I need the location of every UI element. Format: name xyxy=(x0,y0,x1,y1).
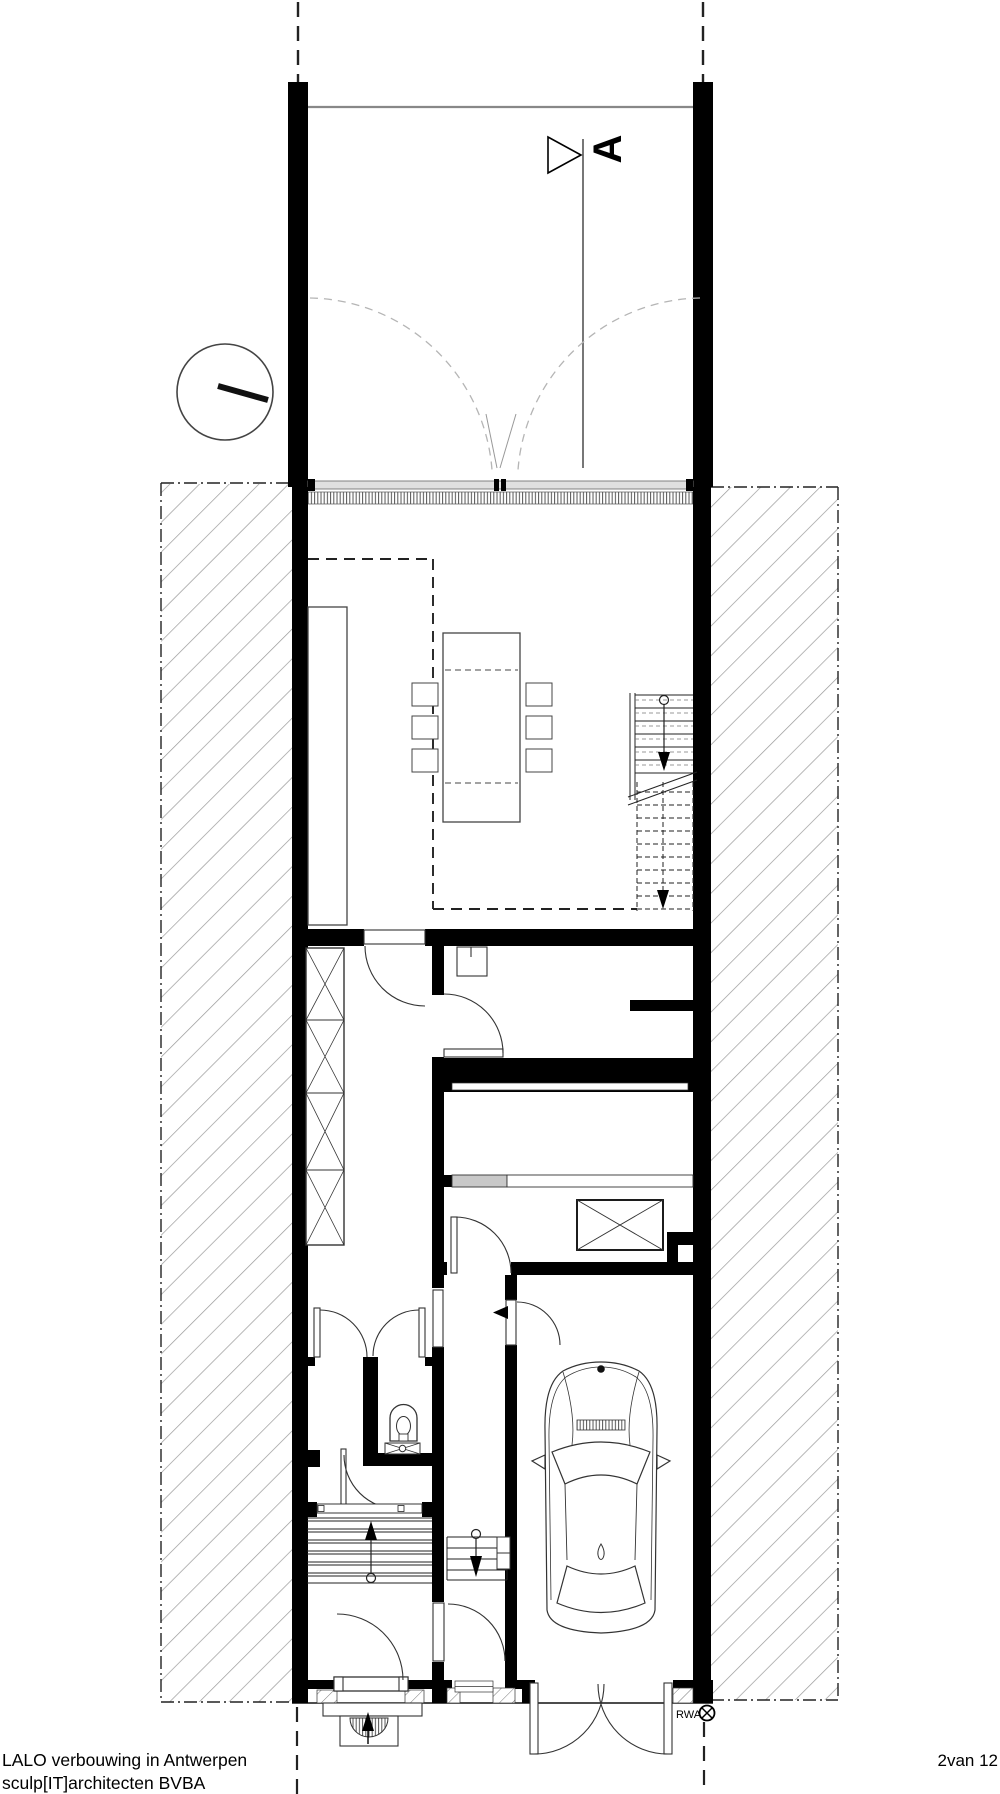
wall-wc-bottom xyxy=(377,1453,444,1466)
door-swing-wc xyxy=(373,1310,419,1356)
sheet-number: 2van 12 xyxy=(938,1751,999,1770)
car-grille xyxy=(577,1420,625,1430)
spine-wall-5 xyxy=(432,1347,444,1602)
facade-pier-8 xyxy=(693,1680,713,1703)
garage-door-swing-right xyxy=(598,1684,668,1754)
facade-pier-3 xyxy=(405,1680,432,1689)
mullion-center-b xyxy=(501,479,506,491)
washbasin xyxy=(457,947,487,976)
glass-door-pivot-lines xyxy=(486,414,516,468)
spine-wall-2 xyxy=(432,1057,444,1262)
dashed-walkline-arrow-icon xyxy=(657,890,669,909)
wall-seam xyxy=(452,1083,688,1090)
title-block: LALO verbouwing in Antwerpen sculp[IT]ar… xyxy=(2,1750,998,1793)
kitchen-dining xyxy=(308,607,552,925)
door-direction-arrow-icon xyxy=(493,1306,508,1319)
mullion-center-a xyxy=(494,479,499,491)
mullion-left xyxy=(308,479,315,491)
chair xyxy=(412,683,438,706)
garage-wall-a xyxy=(505,1275,517,1300)
door-leaf-kitchen xyxy=(364,930,425,944)
toilet-seat xyxy=(397,1417,411,1436)
door-leaf-utility xyxy=(444,1049,503,1057)
front-door-leaf xyxy=(334,1677,408,1691)
door-swing-storage xyxy=(455,1217,511,1273)
door-swing-stairhall xyxy=(320,1310,367,1357)
front-door-swing xyxy=(337,1614,403,1680)
wall-kitchen-a xyxy=(308,929,364,946)
door-swing-garage xyxy=(517,1302,560,1345)
party-walls xyxy=(288,82,713,487)
section-arrow-icon xyxy=(548,137,581,173)
mullion-right xyxy=(686,479,693,491)
glass-door-swing-right xyxy=(518,298,700,470)
wall-opening-corridor xyxy=(433,1290,443,1347)
rwa-vent: RWA xyxy=(676,1706,715,1722)
masonry-2 xyxy=(405,1690,424,1703)
right-wall-stub xyxy=(630,1000,693,1011)
spine-wall-3 xyxy=(432,1262,447,1275)
wall-garage-top xyxy=(511,1262,711,1275)
dashed-flight-treads xyxy=(637,792,693,896)
north-orientation-symbol xyxy=(177,344,273,440)
wall-entry-a xyxy=(292,1502,317,1517)
floor-plan-drawing: A xyxy=(0,0,1000,1794)
left-neighbour-hatch xyxy=(161,484,292,1702)
wall-wc-c xyxy=(425,1357,444,1366)
utility-fixtures xyxy=(457,947,663,1250)
drainage-grate xyxy=(308,492,693,504)
facade-pier-2 xyxy=(308,1680,337,1689)
closet-outline xyxy=(306,948,344,1245)
firm-name: sculp[IT]architecten BVBA xyxy=(2,1773,206,1793)
chair xyxy=(526,716,552,739)
wall-wc-a xyxy=(292,1357,315,1366)
partition-panel-glass xyxy=(507,1175,693,1187)
partition-stub xyxy=(442,1175,452,1187)
meter-box-a xyxy=(497,1537,510,1553)
door-swing-backhall xyxy=(448,1604,505,1661)
door-swing-utility xyxy=(444,994,503,1053)
right-wall xyxy=(693,487,711,1703)
floor-plan-sheet: A xyxy=(0,0,1000,1794)
section-marker: A xyxy=(548,135,630,468)
duct-stub xyxy=(667,1232,693,1245)
garage-door-leaf-right xyxy=(664,1683,672,1754)
wc-toilet xyxy=(385,1405,420,1455)
duct-finger xyxy=(667,1245,678,1262)
orientation-needle-icon xyxy=(218,386,268,400)
entrance-porch xyxy=(323,1703,422,1746)
orientation-circle-icon xyxy=(177,344,273,440)
door-swing-kitchen xyxy=(365,946,425,1006)
spine-wall-1 xyxy=(432,945,444,995)
front-door-hinge-a xyxy=(334,1677,343,1691)
section-label: A xyxy=(586,135,630,164)
garage-wall-b xyxy=(505,1345,517,1680)
party-wall-left xyxy=(288,82,308,487)
kitchen-counter xyxy=(308,607,347,925)
chair xyxy=(412,749,438,772)
walkline-arrow-down-icon xyxy=(658,752,670,771)
door-leaf-storage xyxy=(451,1217,457,1273)
chair xyxy=(412,716,438,739)
entry-step-upper xyxy=(323,1703,422,1716)
rwa-label: RWA xyxy=(676,1709,702,1721)
dining-table xyxy=(443,633,520,822)
meter-box-b xyxy=(497,1553,510,1569)
entry-threshold xyxy=(317,1504,422,1513)
rear-glass-facade xyxy=(308,298,700,504)
right-neighbour-hatch xyxy=(711,487,838,1700)
stair-stringer xyxy=(630,693,635,800)
glass-door-swing-left xyxy=(310,298,492,470)
masonry-4 xyxy=(493,1688,515,1703)
wall-wc-b xyxy=(363,1357,378,1366)
garage-door-swing-left xyxy=(534,1684,604,1754)
garage-door-leaf-left xyxy=(530,1683,538,1754)
masonry-1 xyxy=(317,1690,337,1703)
entry-walkline-start xyxy=(367,1574,376,1583)
wall-entry-b xyxy=(422,1502,444,1517)
garage-walkline-arrow-down-icon xyxy=(470,1556,482,1577)
door-leaf-wc xyxy=(419,1308,425,1357)
party-wall-right xyxy=(693,82,713,487)
spine-wall-4 xyxy=(432,1275,444,1288)
stair-newel xyxy=(307,1450,320,1467)
door-leaf-stairhall xyxy=(314,1308,320,1357)
wall-wc-left xyxy=(363,1366,378,1466)
garage xyxy=(497,1362,670,1633)
partition-panel-gray xyxy=(452,1175,507,1187)
project-title: LALO verbouwing in Antwerpen xyxy=(2,1750,247,1770)
chair xyxy=(526,683,552,706)
toilet-flush xyxy=(399,1434,408,1441)
entry-walkline-arrow-up-icon xyxy=(365,1521,377,1540)
main-staircase xyxy=(628,693,697,911)
chair xyxy=(526,749,552,772)
wardrobe-closet xyxy=(306,948,344,1245)
glass-wall xyxy=(308,481,693,489)
facade-pier-1 xyxy=(292,1680,308,1703)
wall-kitchen-b xyxy=(425,929,693,946)
door-leaf-backhall xyxy=(433,1603,444,1661)
car-emblem-front xyxy=(597,1365,605,1373)
entrance-staircase xyxy=(307,1504,432,1583)
sliding-partition xyxy=(452,1175,693,1187)
cistern-valve-icon xyxy=(399,1445,405,1451)
masonry-5 xyxy=(673,1688,693,1703)
car-top-view xyxy=(532,1362,670,1633)
